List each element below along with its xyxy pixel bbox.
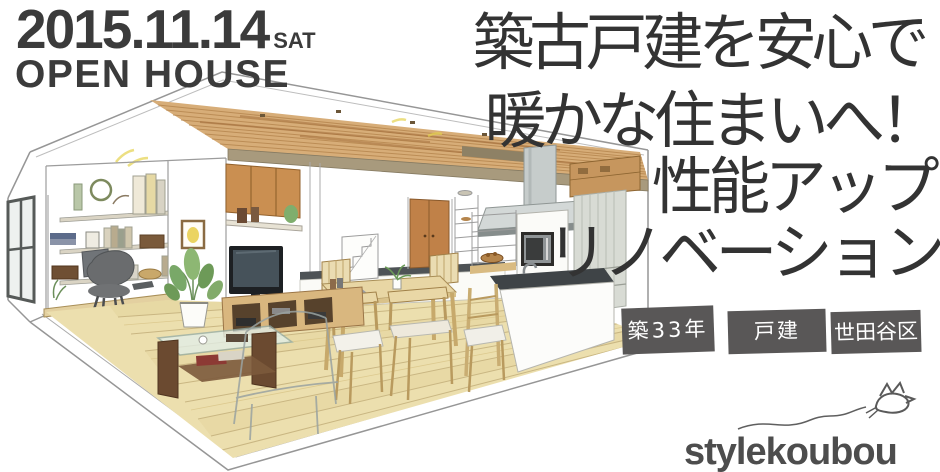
headline-line-4: リノベーション	[546, 222, 940, 284]
coffee-cup	[199, 336, 207, 344]
shelf-items-top	[74, 174, 165, 214]
headline-line-3: 性能アップ	[652, 156, 934, 218]
shelf-items-middle	[50, 226, 164, 248]
logo-swash	[738, 407, 866, 429]
vase	[393, 279, 401, 289]
event-date-text: 2015.11.14	[16, 0, 268, 60]
tag-building-age: 築33年	[621, 305, 715, 354]
bird-icon	[866, 383, 914, 418]
corner-window	[8, 195, 48, 308]
headline-line-1: 築古戸建を安心で	[473, 12, 924, 74]
event-date: 2015.11.14SAT	[16, 2, 316, 57]
event-day: SAT	[268, 28, 315, 53]
tag-area: 世田谷区	[830, 310, 921, 354]
open-house-banner[interactable]: 2015.11.14SAT OPEN HOUSE 築古戸建を安心で 暖かな住まい…	[0, 0, 940, 472]
plant-pot	[180, 303, 208, 327]
headline-line-2: 暖かな住まいへ！	[485, 90, 936, 152]
wall-art-frame	[182, 221, 204, 248]
desk-keyboard	[132, 281, 154, 290]
brand-logo: stylekoubou	[684, 433, 897, 471]
event-title: OPEN HOUSE	[15, 55, 290, 94]
tag-house-type: 戸建	[727, 309, 826, 355]
fruit-bowl	[481, 254, 503, 263]
wreath	[91, 180, 111, 200]
